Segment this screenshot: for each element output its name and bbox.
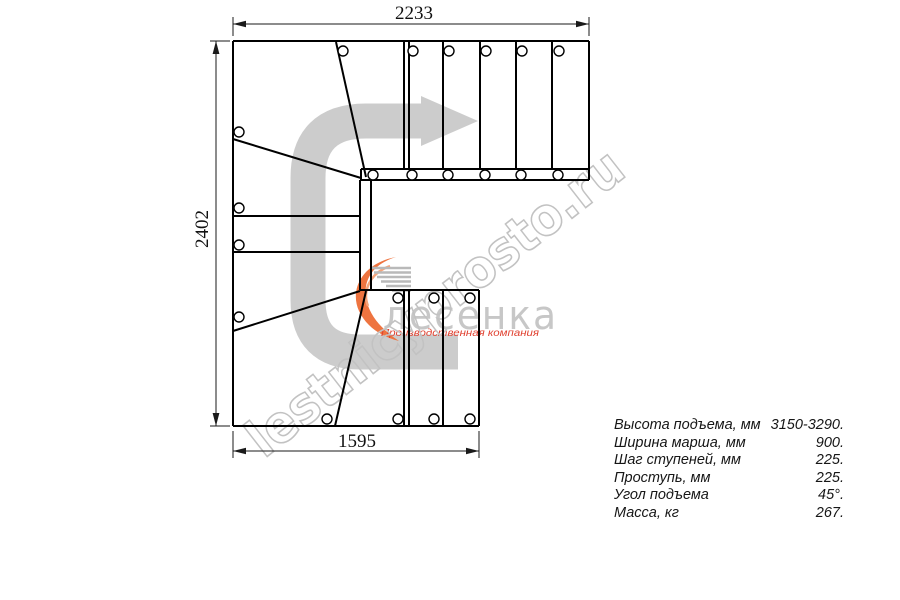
spec-label: Проступь, мм	[614, 470, 710, 488]
dimension-arrowhead	[466, 448, 479, 454]
spec-row: Высота подъема, мм3150-3290.	[614, 417, 844, 435]
screw-hole	[516, 170, 526, 180]
screw-hole	[408, 46, 418, 56]
spec-label: Ширина марша, мм	[614, 435, 746, 453]
screw-hole	[234, 240, 244, 250]
screw-hole	[465, 293, 475, 303]
screw-hole	[443, 170, 453, 180]
screw-hole	[554, 46, 564, 56]
spec-row: Масса, кг267.	[614, 505, 844, 523]
spec-row: Проступь, мм225.	[614, 470, 844, 488]
spec-label: Шаг ступеней, мм	[614, 452, 741, 470]
dimension-arrowhead	[213, 41, 220, 54]
screw-hole	[444, 46, 454, 56]
dimension-arrowhead	[233, 448, 246, 454]
spec-table: Высота подъема, мм3150-3290.Ширина марша…	[614, 417, 844, 523]
spec-value: 45°.	[818, 487, 844, 505]
stair-plan-drawing: лесенка Производственная компания lestni…	[0, 0, 900, 600]
spec-row: Шаг ступеней, мм225.	[614, 452, 844, 470]
spec-value: 225.	[816, 452, 844, 470]
dimension-arrowhead	[576, 21, 589, 27]
dimension-arrowhead	[213, 413, 220, 426]
spec-row: Ширина марша, мм900.	[614, 435, 844, 453]
spec-value: 900.	[816, 435, 844, 453]
spec-label: Высота подъема, мм	[614, 417, 761, 435]
dimension-label-left: 2402	[192, 210, 213, 248]
screw-hole	[480, 170, 490, 180]
screw-hole	[338, 46, 348, 56]
screw-hole	[407, 170, 417, 180]
screw-hole	[393, 414, 403, 424]
spec-row: Угол подъема45°.	[614, 487, 844, 505]
dimension-label-bottom: 1595	[338, 431, 376, 452]
screw-hole	[322, 414, 332, 424]
screw-hole	[234, 312, 244, 322]
spec-label: Угол подъема	[614, 487, 709, 505]
spec-value: 225.	[816, 470, 844, 488]
direction-arrow-head	[421, 96, 478, 146]
spec-value: 267.	[816, 505, 844, 523]
screw-hole	[481, 46, 491, 56]
screw-hole	[234, 203, 244, 213]
screw-hole	[465, 414, 475, 424]
screw-hole	[429, 293, 439, 303]
screw-hole	[368, 170, 378, 180]
spec-value: 3150-3290.	[771, 417, 844, 435]
screw-hole	[393, 293, 403, 303]
dimension-label-top: 2233	[395, 3, 433, 24]
dimension-arrowhead	[233, 21, 246, 27]
screw-hole	[517, 46, 527, 56]
screw-hole	[553, 170, 563, 180]
screw-hole	[429, 414, 439, 424]
spec-label: Масса, кг	[614, 505, 679, 523]
screw-hole	[234, 127, 244, 137]
